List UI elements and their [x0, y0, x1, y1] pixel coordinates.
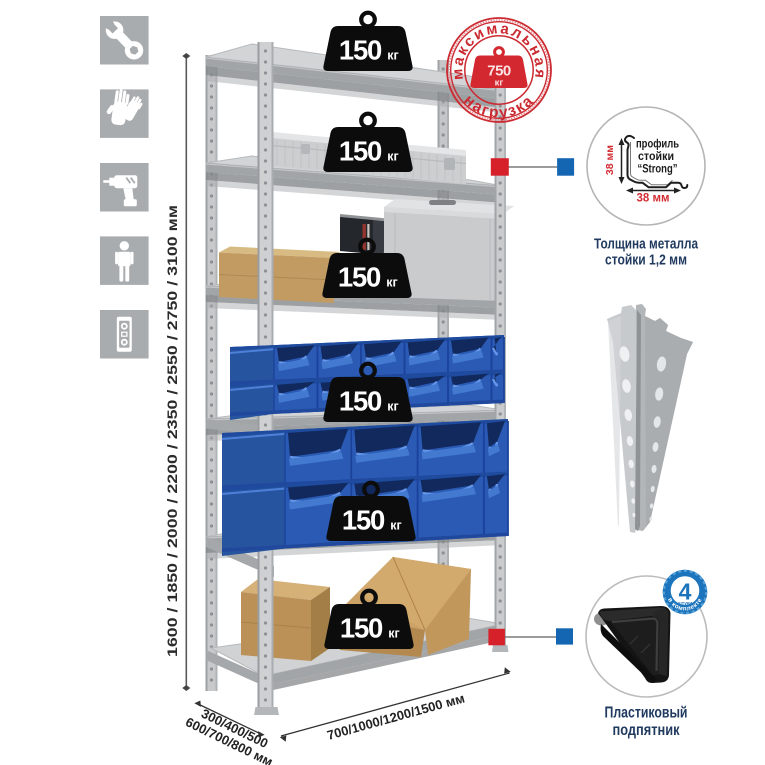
svg-text:кг: кг	[388, 627, 399, 641]
svg-text:подпятник: подпятник	[613, 722, 680, 739]
svg-text:150: 150	[338, 262, 381, 293]
svg-text:кг: кг	[495, 78, 504, 89]
svg-text:150: 150	[339, 386, 382, 417]
svg-text:стойки 1,2 мм: стойки 1,2 мм	[605, 253, 687, 269]
svg-text:кг: кг	[387, 400, 398, 414]
svg-text:38 мм: 38 мм	[636, 193, 669, 205]
svg-text:Толщина металла: Толщина металла	[594, 237, 699, 253]
svg-text:700/1000/1200/1500 мм: 700/1000/1200/1500 мм	[325, 690, 466, 742]
svg-text:кг: кг	[386, 276, 397, 290]
svg-text:150: 150	[339, 136, 382, 167]
svg-text:150: 150	[340, 613, 383, 644]
svg-text:“Strong”: “Strong”	[638, 164, 678, 176]
svg-text:стойки: стойки	[638, 151, 674, 163]
svg-text:кг: кг	[390, 519, 401, 533]
svg-text:150: 150	[339, 35, 382, 66]
svg-text:38 мм: 38 мм	[604, 145, 616, 175]
svg-text:1600 / 1850 / 2000 / 2200 / 23: 1600 / 1850 / 2000 / 2200 / 2350 / 2550 …	[165, 205, 180, 657]
svg-text:кг: кг	[387, 49, 398, 63]
svg-text:кг: кг	[387, 150, 398, 164]
svg-text:профиль: профиль	[636, 139, 679, 151]
svg-text:150: 150	[342, 505, 385, 536]
svg-text:Пластиковый: Пластиковый	[605, 705, 688, 722]
